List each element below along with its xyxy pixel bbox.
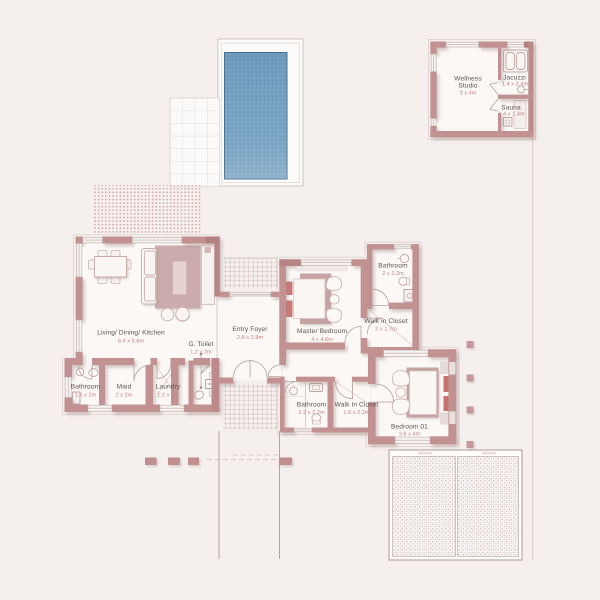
svg-text:2 x 2.2m: 2 x 2.2m xyxy=(382,271,404,277)
svg-text:1.4 x 1.4m: 1.4 x 1.4m xyxy=(498,112,525,118)
svg-text:Entry Foyer: Entry Foyer xyxy=(232,326,268,333)
svg-text:2 x 1.7m: 2 x 1.7m xyxy=(375,327,397,333)
svg-text:1.4 x 2.4m: 1.4 x 2.4m xyxy=(502,82,529,88)
svg-text:Bedroom 01: Bedroom 01 xyxy=(391,424,428,431)
svg-text:Wellness: Wellness xyxy=(454,76,482,83)
svg-text:4 x 4.6m: 4 x 4.6m xyxy=(311,337,333,343)
svg-text:Maid: Maid xyxy=(117,384,132,391)
svg-text:Sauna: Sauna xyxy=(501,105,521,112)
svg-text:Walk In Closet: Walk In Closet xyxy=(335,402,379,409)
svg-text:Walk in Closet: Walk in Closet xyxy=(364,318,407,325)
svg-text:2 x 2m: 2 x 2m xyxy=(116,393,133,399)
svg-text:1.2 x 2m: 1.2 x 2m xyxy=(157,393,179,399)
svg-text:Laundry: Laundry xyxy=(156,384,181,391)
svg-text:Living/ Dining/ Kitchen: Living/ Dining/ Kitchen xyxy=(97,330,165,337)
svg-text:2.8 x 3.8m: 2.8 x 3.8m xyxy=(237,335,264,341)
svg-text:Studio: Studio xyxy=(458,83,478,90)
svg-text:3.8 x 4m: 3.8 x 4m xyxy=(399,432,421,438)
svg-text:Master Bedroom: Master Bedroom xyxy=(297,328,348,335)
svg-text:Bathroom: Bathroom xyxy=(378,263,408,270)
svg-text:3 x 4m: 3 x 4m xyxy=(460,91,477,97)
svg-text:2.2 x 2.2m: 2.2 x 2.2m xyxy=(298,410,325,416)
svg-text:Bathroom: Bathroom xyxy=(297,402,327,409)
svg-text:6.4 x 5.6m: 6.4 x 5.6m xyxy=(118,339,145,345)
svg-text:Bathroom: Bathroom xyxy=(71,384,101,391)
svg-text:1.6 x 2m: 1.6 x 2m xyxy=(75,393,97,399)
svg-text:G. Toilet: G. Toilet xyxy=(189,341,214,348)
svg-text:1.6 x 2.2m: 1.6 x 2.2m xyxy=(343,410,370,416)
svg-text:1.2 x 2m: 1.2 x 2m xyxy=(190,350,212,356)
svg-text:Jacuzzi: Jacuzzi xyxy=(503,75,526,82)
